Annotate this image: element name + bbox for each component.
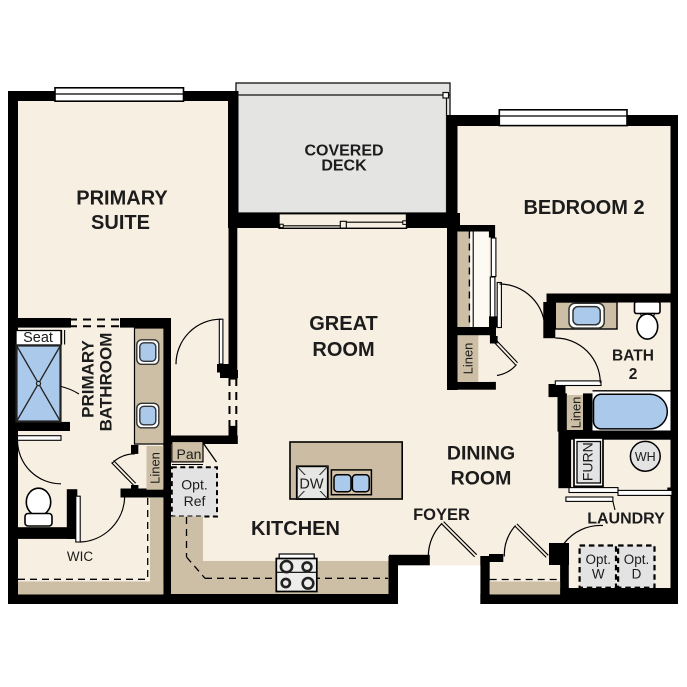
svg-text:Seat: Seat bbox=[23, 330, 53, 346]
svg-text:DINING: DINING bbox=[447, 442, 515, 464]
svg-text:Opt.: Opt. bbox=[624, 552, 650, 567]
svg-text:ROOM: ROOM bbox=[312, 339, 374, 361]
svg-text:ROOM: ROOM bbox=[451, 467, 512, 489]
svg-text:PRIMARY: PRIMARY bbox=[79, 339, 98, 417]
svg-text:2: 2 bbox=[629, 366, 638, 383]
svg-text:FURN: FURN bbox=[580, 442, 596, 481]
svg-text:D: D bbox=[632, 567, 642, 582]
svg-text:W: W bbox=[592, 567, 605, 582]
svg-text:Linen: Linen bbox=[568, 397, 583, 429]
svg-text:BATH: BATH bbox=[612, 347, 654, 364]
svg-text:Opt.: Opt. bbox=[181, 477, 207, 493]
svg-text:WH: WH bbox=[635, 450, 656, 464]
svg-text:FOYER: FOYER bbox=[413, 506, 470, 524]
svg-text:BATHROOM: BATHROOM bbox=[97, 333, 116, 432]
svg-text:BEDROOM 2: BEDROOM 2 bbox=[523, 197, 644, 219]
svg-text:Linen: Linen bbox=[461, 343, 476, 375]
svg-text:Opt.: Opt. bbox=[586, 552, 612, 567]
svg-text:GREAT: GREAT bbox=[309, 313, 378, 335]
svg-text:Pan: Pan bbox=[177, 446, 202, 462]
svg-text:DW: DW bbox=[299, 476, 323, 492]
svg-text:DECK: DECK bbox=[321, 158, 367, 175]
svg-text:WIC: WIC bbox=[67, 549, 93, 564]
svg-text:PRIMARY: PRIMARY bbox=[76, 188, 168, 210]
svg-text:Linen: Linen bbox=[147, 452, 162, 484]
svg-text:LAUNDRY: LAUNDRY bbox=[587, 511, 665, 528]
svg-text:Ref: Ref bbox=[184, 493, 206, 509]
svg-text:KITCHEN: KITCHEN bbox=[251, 518, 340, 540]
svg-text:SUITE: SUITE bbox=[91, 212, 150, 234]
